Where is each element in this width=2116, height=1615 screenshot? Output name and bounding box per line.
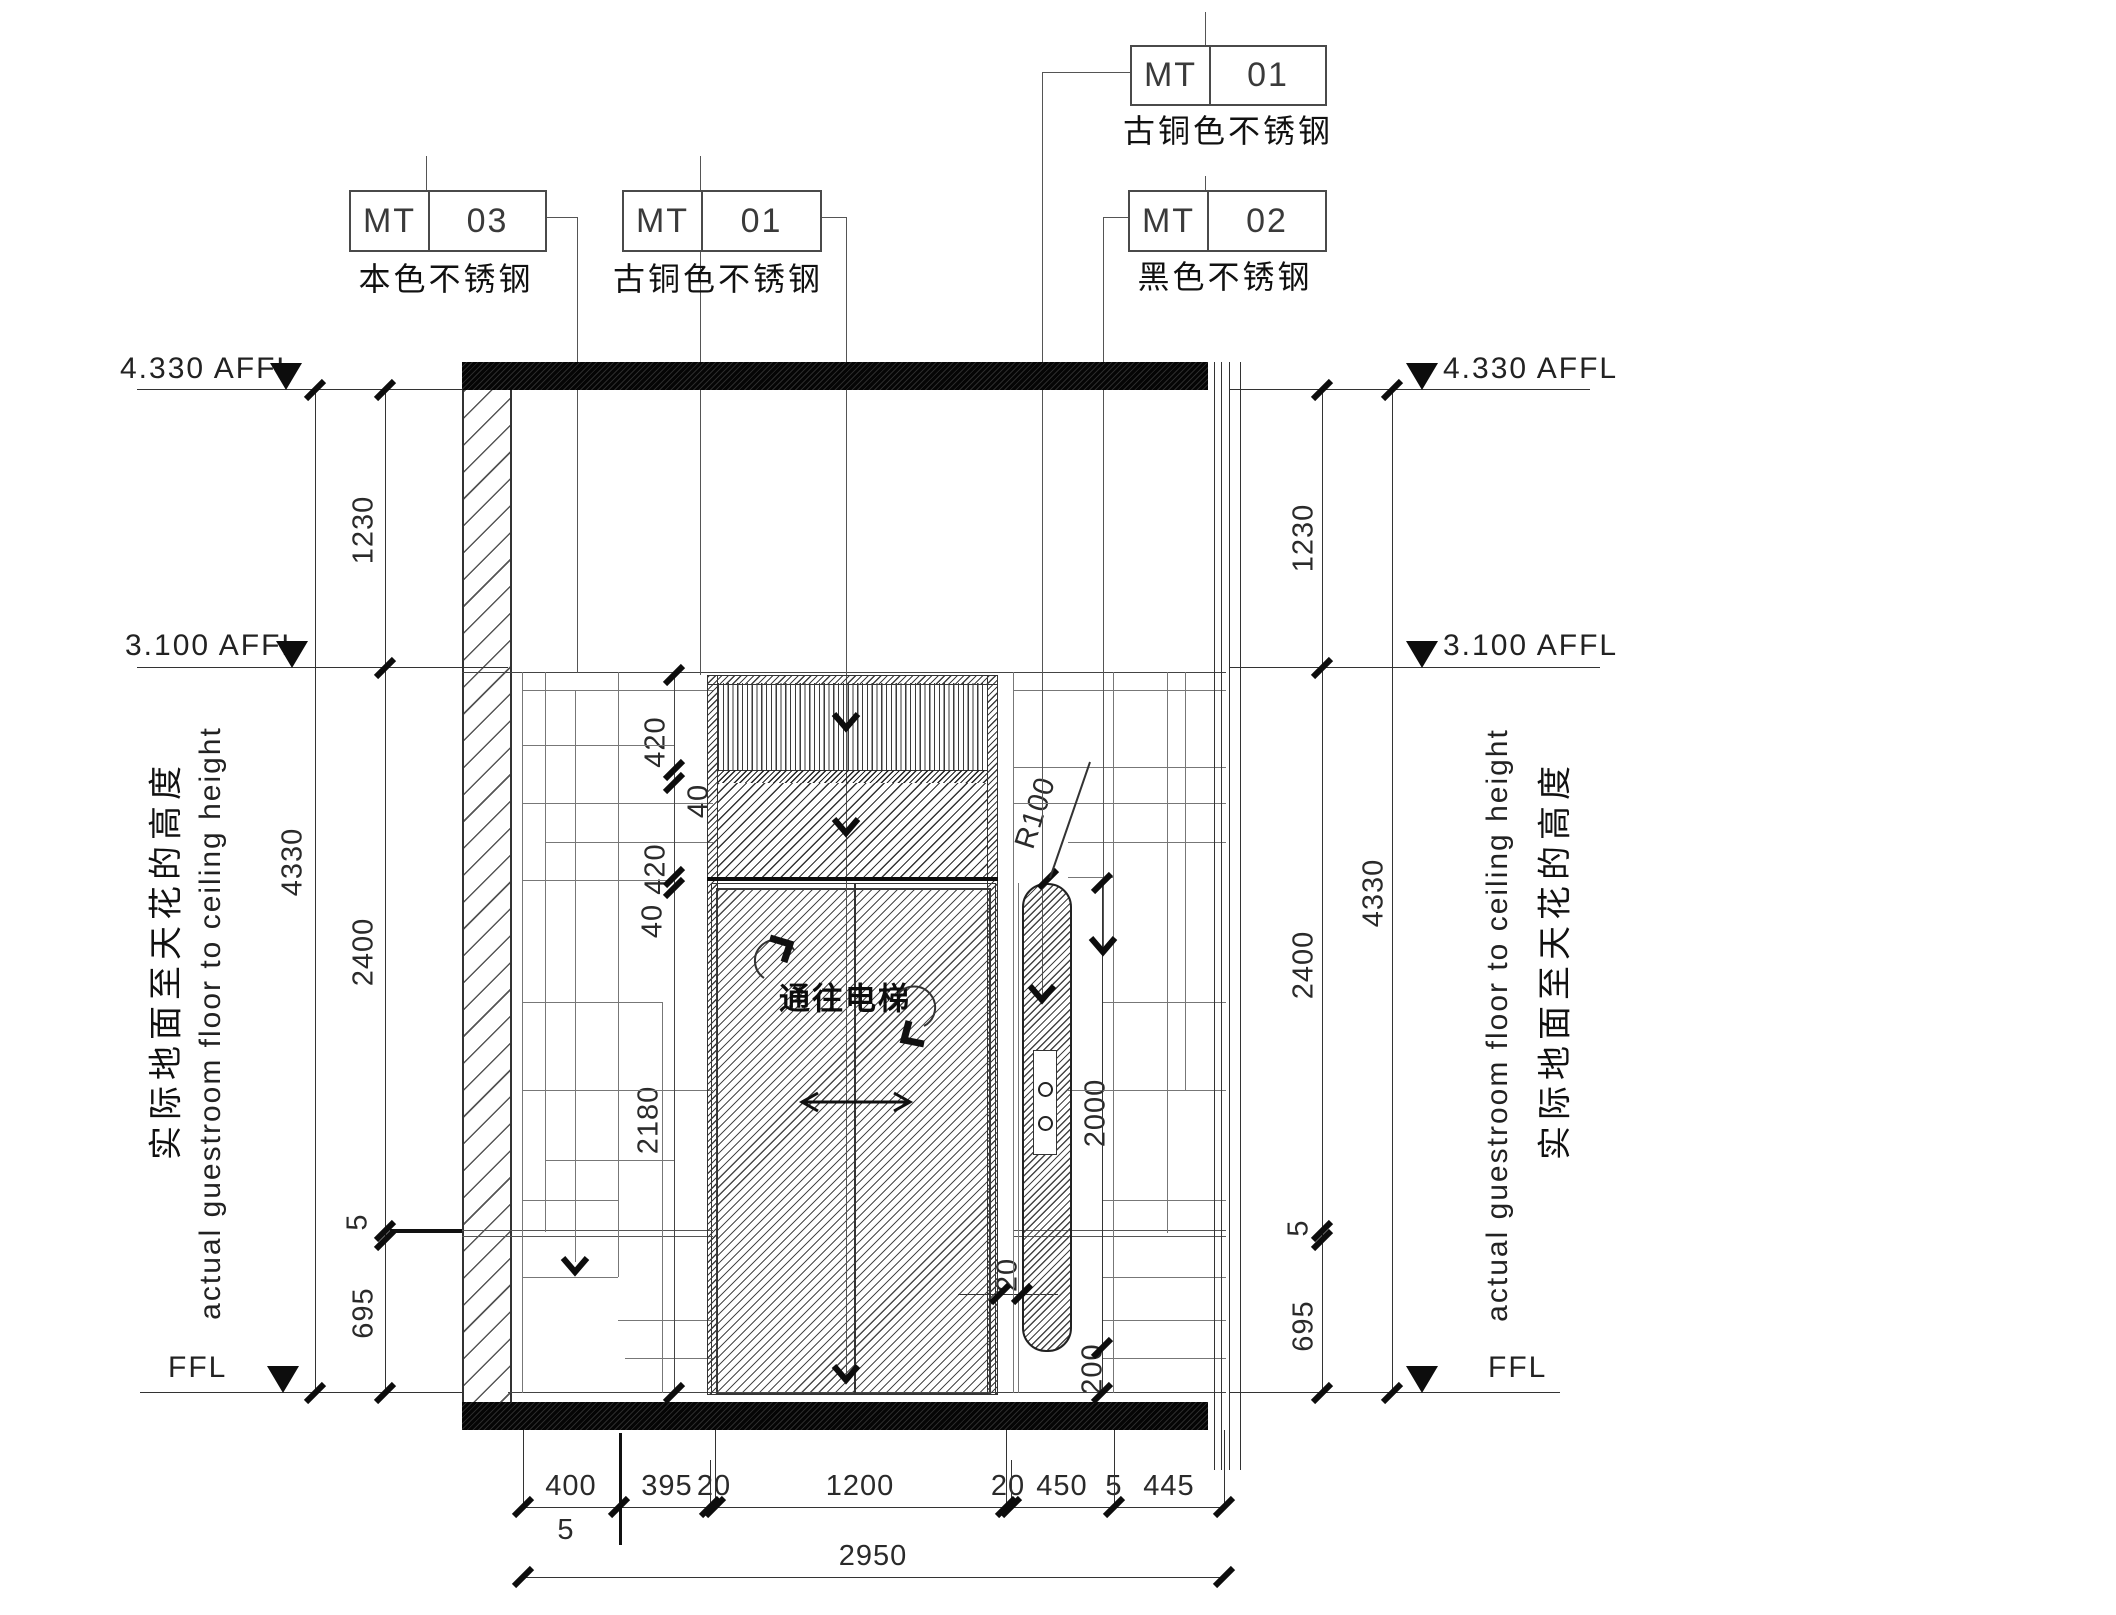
drawing-line (1229, 362, 1230, 1470)
side-note-en-right: actual guestroom floor to ceiling height (1481, 728, 1515, 1322)
dim-2180: 2180 (633, 1086, 666, 1155)
drawing-line (1103, 1320, 1226, 1321)
drawing-line (577, 217, 578, 673)
drawing-line (1224, 1430, 1225, 1510)
door-transom-panel (718, 683, 987, 771)
drawing-line (523, 1430, 524, 1510)
drawing-line (1167, 672, 1168, 1233)
drawing-line (137, 667, 508, 668)
drawing-line (523, 1507, 1224, 1508)
dim-5-left: 5 (342, 1213, 375, 1230)
tag-number: 02 (1209, 192, 1325, 250)
drawing-line (385, 390, 386, 1393)
dim-2950: 2950 (839, 1540, 908, 1573)
dim-2400-left: 2400 (348, 918, 381, 987)
drawing-line (1102, 883, 1103, 1393)
drawing-line (662, 1002, 663, 1393)
r100-leader-line (1050, 762, 1090, 878)
drawing-line (1392, 390, 1393, 1393)
material-tag-mt02: MT 02 (1128, 190, 1327, 252)
door-sign-text: 通往电梯 (779, 974, 911, 1019)
dim-20-b: 20 (991, 1470, 1025, 1503)
dim-445: 445 (1143, 1470, 1194, 1503)
ceiling-slab-band (462, 362, 1208, 390)
dim-695-left: 695 (348, 1287, 381, 1338)
material-desc-mt02: 黑色不锈钢 (1137, 252, 1312, 298)
drawing-line (575, 690, 576, 1262)
dim-4330-left: 4330 (277, 828, 310, 897)
drawing-line (545, 1160, 674, 1161)
screw-icon (1038, 1116, 1053, 1131)
drawing-line (426, 156, 427, 190)
drawing-line (1230, 667, 1600, 668)
dim-420-a: 420 (640, 716, 673, 767)
tag-code: MT (351, 192, 430, 250)
drawing-line (1103, 1002, 1226, 1003)
drawing-line (1013, 690, 1226, 691)
drawing-line (462, 1236, 713, 1237)
drawing-line (625, 1358, 713, 1359)
door-frame-left (707, 675, 718, 1395)
drawing-line (618, 1320, 713, 1321)
tag-code: MT (1132, 47, 1211, 104)
floor-slab-band (462, 1402, 1208, 1430)
drawing-line (522, 1277, 618, 1278)
drawing-line (1221, 362, 1222, 1470)
dim-5-below: 5 (557, 1514, 574, 1547)
dim-400: 400 (545, 1470, 596, 1503)
drawing-line (390, 1229, 462, 1233)
drawing-line (545, 842, 713, 843)
material-desc-mt01-left: 古铜色不锈钢 (613, 254, 823, 300)
drawing-line (619, 1433, 622, 1545)
screw-icon (1038, 1082, 1053, 1097)
drawing-line (710, 1460, 711, 1510)
drawing-line (1230, 1392, 1560, 1393)
drawing-line (522, 1200, 618, 1201)
dim-695-right: 695 (1288, 1300, 1321, 1351)
dim-450: 450 (1036, 1470, 1087, 1503)
drawing-line (1114, 1430, 1115, 1510)
dim-40-b: 40 (637, 904, 670, 938)
level-mid-right: 3.100 AFFL (1443, 629, 1618, 663)
dim-20-a: 20 (697, 1470, 731, 1503)
door-frame-right (987, 675, 998, 1395)
drawing-line (1230, 389, 1590, 390)
dim-1230-left: 1230 (348, 496, 381, 565)
tag-number: 03 (430, 192, 545, 250)
level-ffl-right: FFL (1488, 1351, 1547, 1385)
drawing-line (140, 1392, 462, 1393)
tag-number: 01 (1211, 47, 1325, 104)
drawing-line (1214, 362, 1215, 1470)
drawing-line (1103, 1200, 1226, 1201)
drawing-line (1103, 1277, 1226, 1278)
dim-395: 395 (641, 1470, 692, 1503)
tag-code: MT (1130, 192, 1209, 250)
material-desc-mt03: 本色不锈钢 (358, 254, 533, 300)
drawing-line (1013, 672, 1014, 1393)
dim-2400-right: 2400 (1288, 931, 1321, 1000)
drawing-line (1068, 842, 1226, 843)
drawing-line (1103, 217, 1128, 218)
drawing-line (618, 672, 619, 1277)
drawing-line (674, 675, 675, 1393)
drawing-line (508, 1392, 1226, 1393)
tag-number: 01 (703, 192, 820, 250)
dim-1230-right: 1230 (1288, 504, 1321, 573)
dim-r100: R100 (1009, 773, 1063, 853)
level-ffl-left: FFL (168, 1351, 227, 1385)
dim-4330-right: 4330 (1358, 859, 1391, 928)
drawing-line (523, 1577, 1224, 1578)
dim-1200: 1200 (826, 1470, 895, 1503)
door-mid-panel (718, 783, 987, 878)
drawing-line (1068, 877, 1113, 878)
drawing-line (1006, 1430, 1007, 1510)
drawing-line (1042, 72, 1130, 73)
material-tag-mt01-left: MT 01 (622, 190, 822, 252)
handle-plate (1033, 1050, 1057, 1155)
annotation-overlay (0, 0, 2116, 1615)
door-separator-strip (718, 770, 987, 783)
drawing-line (1042, 72, 1043, 998)
drawing-line (1013, 767, 1226, 768)
wall-section-hatch (462, 390, 512, 1402)
drawing-line (315, 390, 316, 1393)
drawing-line (1113, 672, 1114, 1393)
level-mid-left: 3.100 AFFL (125, 629, 300, 663)
drawing-line (1103, 1358, 1226, 1359)
drawing-line (715, 1430, 716, 1510)
drawing-line (1011, 1460, 1012, 1510)
drawing-line (462, 1230, 713, 1231)
drawing-line (1068, 1090, 1226, 1091)
drawing-line (1322, 390, 1323, 1393)
level-top-left: 4.330 AFFL (120, 352, 295, 386)
drawing-line (700, 156, 701, 190)
material-tag-mt03: MT 03 (349, 190, 547, 252)
drawing-line (1240, 362, 1241, 1470)
drawing-line (818, 217, 846, 218)
dim-420-b: 420 (640, 843, 673, 894)
material-tag-mt01-top: MT 01 (1130, 45, 1327, 106)
drawing-line (522, 1002, 662, 1003)
elevation-drawing: MT 03 本色不锈钢 MT 01 古铜色不锈钢 MT 01 古铜色不锈钢 MT… (0, 0, 2116, 1615)
drawing-line (1205, 176, 1206, 190)
drawing-line (1013, 803, 1226, 804)
material-desc-mt01-top: 古铜色不锈钢 (1123, 106, 1333, 152)
drawing-line (700, 248, 701, 675)
side-note-cn-left: 实际地面至天花的高度 (139, 760, 188, 1160)
door-center-split (854, 883, 856, 1393)
drawing-line (545, 672, 546, 1232)
drawing-line (1205, 12, 1206, 45)
drawing-line (1185, 672, 1186, 1090)
drawing-line (137, 389, 462, 390)
side-note-en-left: actual guestroom floor to ceiling height (194, 726, 228, 1320)
dim-200: 200 (1077, 1343, 1110, 1394)
dim-5-right: 5 (1283, 1219, 1316, 1236)
tag-code: MT (624, 192, 703, 250)
drawing-line (522, 672, 523, 1393)
drawing-line (1103, 217, 1104, 952)
door-head-line (707, 877, 998, 881)
drawing-line (543, 217, 577, 218)
drawing-line (1018, 883, 1019, 1393)
level-top-right: 4.330 AFFL (1443, 352, 1618, 386)
side-note-cn-right: 实际地面至天花的高度 (1528, 760, 1577, 1160)
